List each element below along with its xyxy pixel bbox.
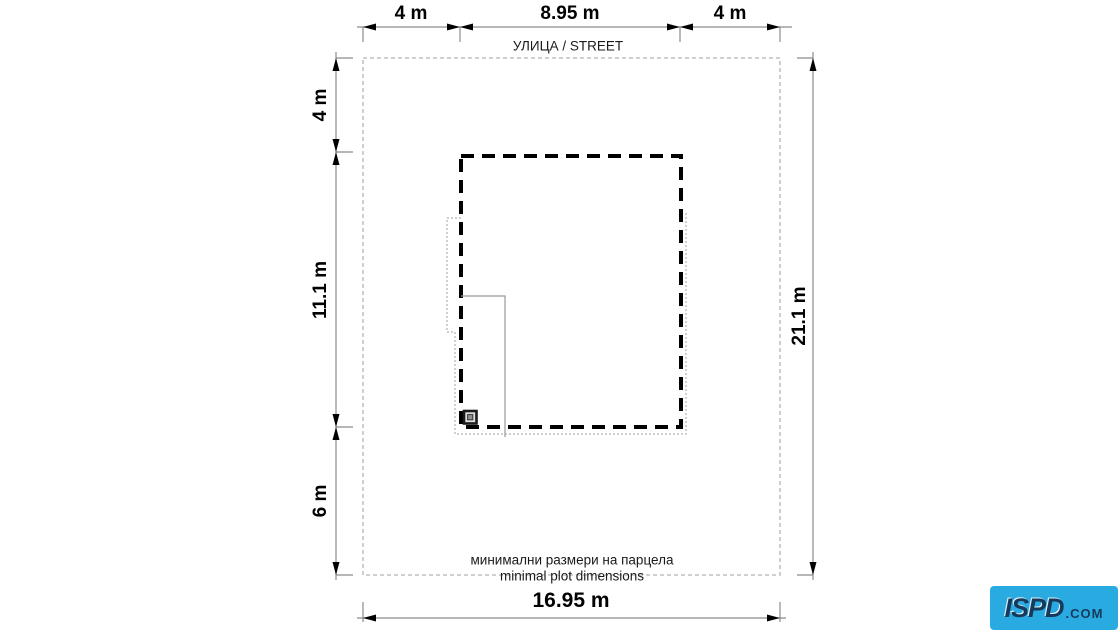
dim-ticks-left — [336, 58, 353, 575]
logo-brand-text: ISPD — [1005, 593, 1064, 624]
house-outline — [447, 213, 686, 434]
arrow-up-icon — [333, 152, 340, 165]
arrow-left-icon — [680, 24, 693, 31]
ispd-logo: ISPD .COM — [990, 586, 1118, 630]
dim-label-building-width: 8.95 m — [540, 3, 599, 25]
arrow-up-icon — [333, 58, 340, 71]
street-label: УЛИЦА / STREET — [513, 39, 623, 54]
logo-suffix-text: .COM — [1066, 606, 1104, 621]
plot-dimensions-diagram: 4 m 8.95 m 4 m УЛИЦА / STREET 4 m 11.1 m… — [0, 0, 1120, 632]
caption-en: minimal plot dimensions — [500, 569, 644, 584]
dim-label-plot-width: 16.95 m — [532, 589, 609, 613]
arrow-right-icon — [767, 615, 780, 622]
arrow-down-icon — [333, 414, 340, 427]
dim-label-side-setback: 4 m — [714, 3, 747, 25]
arrow-down-icon — [333, 139, 340, 152]
dim-label-plot-depth: 21.1 m — [789, 286, 811, 345]
dim-label-rear-setback: 6 m — [310, 485, 332, 518]
caption-bg: минимални размери на парцела — [471, 553, 674, 568]
dim-label-front-setback: 4 m — [395, 3, 428, 25]
arrow-left-icon — [363, 24, 376, 31]
dimension-lines — [336, 27, 813, 622]
dimension-arrows — [333, 24, 817, 622]
arrow-up-icon — [810, 58, 817, 71]
arrow-up-icon — [333, 427, 340, 440]
arrow-left-icon — [460, 24, 473, 31]
arrow-right-icon — [447, 24, 460, 31]
dim-label-building-depth: 11.1 m — [310, 261, 332, 319]
building-footprint — [461, 156, 681, 427]
arrow-down-icon — [333, 562, 340, 575]
arrow-left-icon — [363, 615, 376, 622]
dim-label-street-setback: 4 m — [310, 89, 332, 122]
column-symbol — [464, 411, 477, 424]
arrow-right-icon — [767, 24, 780, 31]
arrow-down-icon — [810, 562, 817, 575]
arrow-right-icon — [667, 24, 680, 31]
plot-boundary — [363, 58, 780, 575]
plan-canvas — [0, 0, 1120, 632]
